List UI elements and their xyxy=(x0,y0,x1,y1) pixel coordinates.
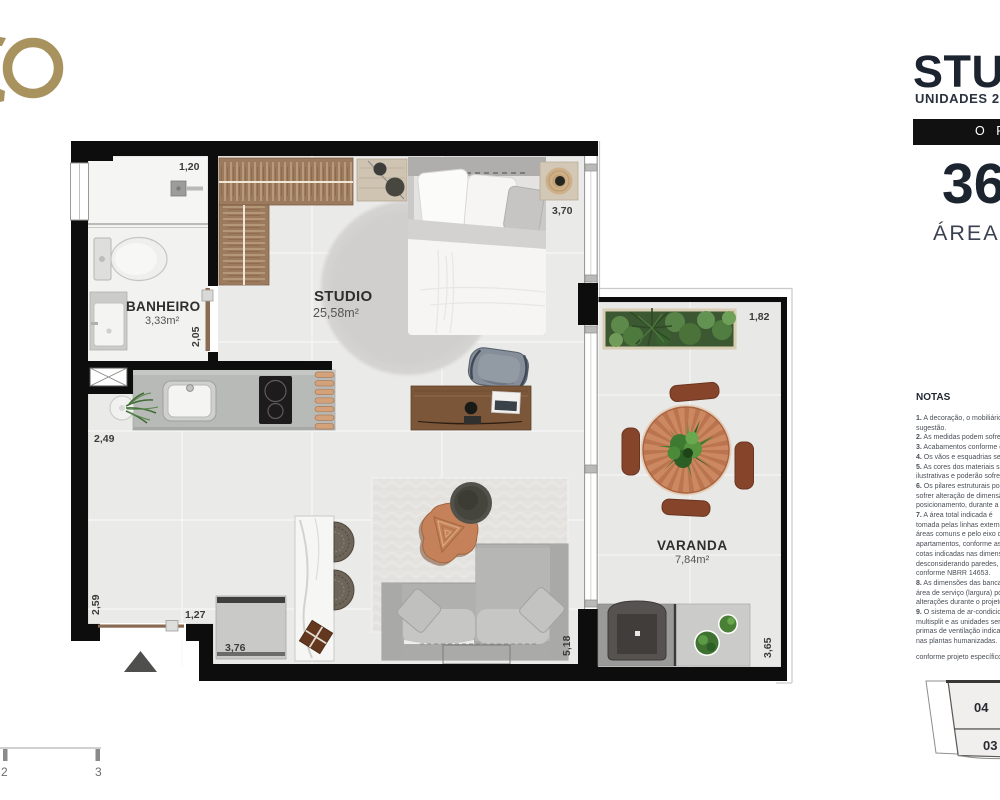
svg-text:STUDIO: STUDIO xyxy=(314,288,372,305)
svg-text:3,76: 3,76 xyxy=(225,642,246,654)
svg-text:1,27: 1,27 xyxy=(185,609,206,621)
svg-text:2: 2 xyxy=(1,765,8,779)
svg-text:3: 3 xyxy=(95,765,102,779)
svg-text:03: 03 xyxy=(983,738,997,753)
svg-text:5,18: 5,18 xyxy=(561,635,573,656)
svg-text:3,70: 3,70 xyxy=(552,205,573,217)
svg-text:7,84m²: 7,84m² xyxy=(675,554,710,566)
svg-text:3,33m²: 3,33m² xyxy=(145,315,180,327)
svg-text:1,20: 1,20 xyxy=(179,161,200,173)
svg-text:VARANDA: VARANDA xyxy=(657,538,728,553)
svg-text:2,59: 2,59 xyxy=(90,594,102,615)
svg-text:2,05: 2,05 xyxy=(190,326,202,347)
svg-text:3,65: 3,65 xyxy=(762,637,774,658)
svg-text:04: 04 xyxy=(974,700,989,715)
svg-text:25,58m²: 25,58m² xyxy=(313,306,359,320)
svg-text:2,49: 2,49 xyxy=(94,433,115,445)
svg-text:1,82: 1,82 xyxy=(749,311,770,323)
svg-text:BANHEIRO: BANHEIRO xyxy=(126,299,200,314)
